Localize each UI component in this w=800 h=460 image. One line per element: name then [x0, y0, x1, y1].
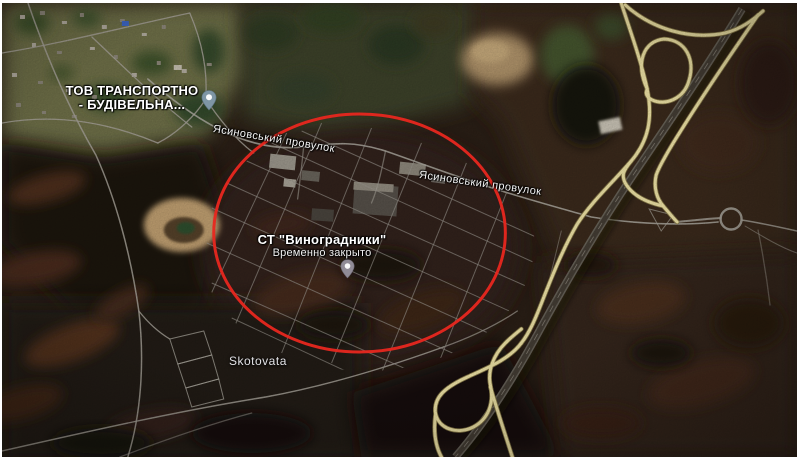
settlement-label[interactable]: Skotovata — [229, 354, 287, 368]
site-poi-label[interactable]: СТ "Виноградники" Временно закрыто — [242, 233, 402, 259]
business-poi-line2: - БУДІВЕЛЬНА... — [62, 98, 202, 112]
site-pin-icon[interactable] — [340, 259, 355, 279]
business-poi-line1: ТОВ ТРАНСПОРТНО — [62, 84, 202, 98]
business-pin-icon[interactable] — [201, 90, 217, 111]
grain-overlay — [2, 3, 797, 457]
site-status: Временно закрыто — [242, 247, 402, 259]
business-poi-label[interactable]: ТОВ ТРАНСПОРТНО - БУДІВЕЛЬНА... — [62, 84, 202, 113]
satellite-imagery — [2, 3, 797, 457]
map-canvas[interactable]: ТОВ ТРАНСПОРТНО - БУДІВЕЛЬНА... Ясиновсь… — [2, 3, 797, 457]
screenshot-frame: ТОВ ТРАНСПОРТНО - БУДІВЕЛЬНА... Ясиновсь… — [0, 0, 800, 460]
site-name: СТ "Виноградники" — [242, 233, 402, 247]
